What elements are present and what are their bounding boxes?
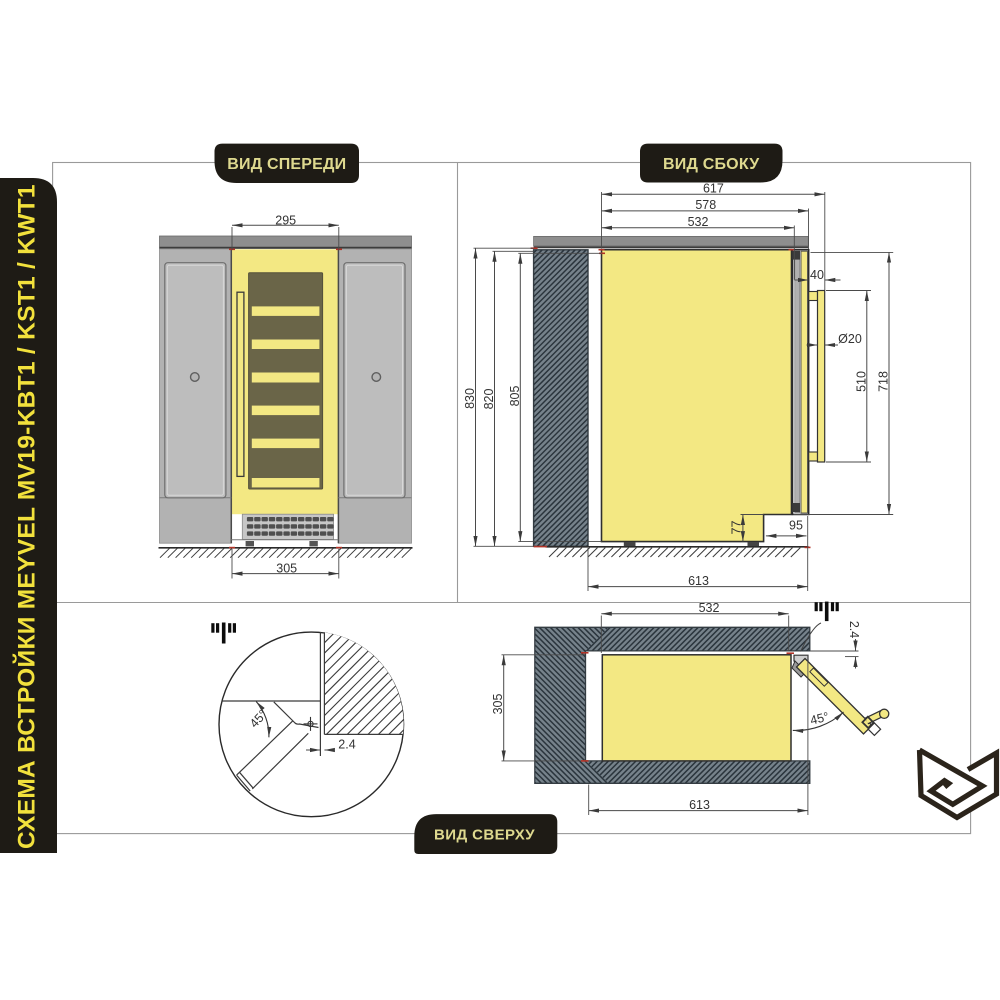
svg-text:40: 40: [810, 268, 824, 282]
svg-text:2.4: 2.4: [847, 621, 861, 638]
svg-text:Ø20: Ø20: [838, 332, 862, 346]
svg-text:ВИД СВЕРХУ: ВИД СВЕРХУ: [434, 826, 535, 843]
svg-text:532: 532: [688, 215, 709, 229]
svg-text:2.4: 2.4: [338, 738, 355, 752]
svg-text:613: 613: [688, 574, 709, 588]
svg-text:578: 578: [695, 198, 716, 212]
svg-text:805: 805: [508, 386, 522, 407]
svg-text:ВИД СБОКУ: ВИД СБОКУ: [663, 156, 760, 173]
svg-text:532: 532: [699, 601, 720, 615]
svg-text:295: 295: [275, 213, 296, 227]
svg-text:718: 718: [877, 371, 891, 392]
svg-text:СХЕМА ВСТРОЙКИ MEYVEL MV19-KBT: СХЕМА ВСТРОЙКИ MEYVEL MV19-KBT1 / KST1 /…: [13, 184, 41, 849]
svg-text:613: 613: [689, 798, 710, 812]
svg-text:617: 617: [703, 182, 724, 196]
svg-text:510: 510: [854, 371, 868, 392]
svg-text:95: 95: [789, 519, 803, 533]
svg-text:830: 830: [463, 388, 477, 409]
svg-text:305: 305: [491, 694, 505, 715]
svg-text:305: 305: [276, 561, 297, 575]
svg-text:ВИД СПЕРЕДИ: ВИД СПЕРЕДИ: [227, 156, 346, 173]
svg-text:77: 77: [730, 521, 744, 535]
svg-text:820: 820: [482, 389, 496, 410]
